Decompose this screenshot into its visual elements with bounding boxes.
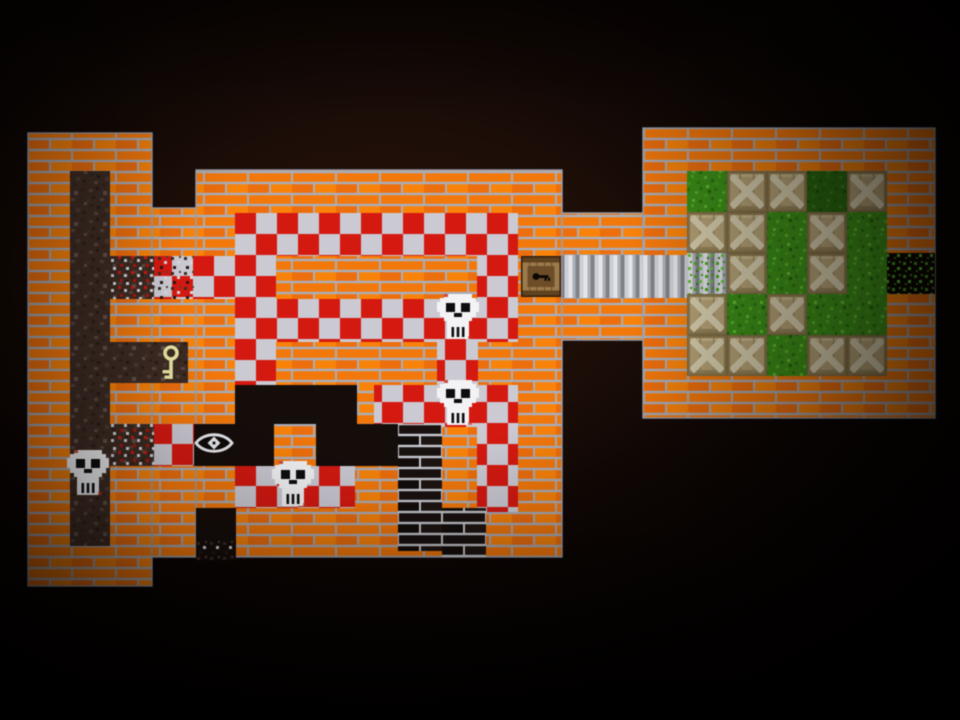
floor-band-top [235, 213, 518, 256]
floor-south-exit-rubble [196, 541, 236, 560]
floor-room-pillar [274, 424, 316, 466]
floor-corridor-floor [562, 255, 687, 298]
crate-icon[interactable] [727, 212, 767, 253]
wall-corridor-bottom-wall [562, 298, 643, 340]
floor-eye-pass-dirt-overlay [110, 424, 154, 466]
crate-icon[interactable] [807, 335, 847, 376]
floor-west-pass-dirt-overlay [110, 256, 154, 299]
floor-west-pass-tile [196, 256, 276, 299]
dungeon-map-canvas[interactable] [0, 0, 960, 720]
crate-icon[interactable] [807, 212, 847, 253]
crate-icon[interactable] [727, 335, 767, 376]
floor-skull-path [437, 342, 478, 385]
crate-icon[interactable] [727, 253, 767, 294]
crate-icon[interactable] [687, 294, 727, 335]
floor-west-pass-mixed-overlay [154, 256, 196, 299]
floor-eye-pass-checker [154, 424, 194, 466]
floor-rubble-foot [442, 508, 486, 557]
crate-icon[interactable] [847, 171, 887, 212]
floor-dark-room-a [235, 385, 357, 427]
crate-icon[interactable] [727, 171, 767, 212]
crate-icon[interactable] [767, 171, 807, 212]
crate-icon[interactable] [847, 335, 887, 376]
floor-right-path [477, 427, 518, 512]
wall-corridor-top-wall [562, 213, 643, 255]
eye-icon[interactable] [196, 435, 232, 452]
crate-icon[interactable] [687, 335, 727, 376]
floor-west-grass-ramp-overlay [687, 253, 727, 294]
crate-icon[interactable] [807, 253, 847, 294]
crate-icon[interactable] [767, 294, 807, 335]
door-icon[interactable] [521, 256, 561, 297]
floor-left-path [235, 342, 276, 385]
floor-grass-dark-patch [807, 171, 847, 212]
crate-icon[interactable] [687, 212, 727, 253]
floor-rubble-column [398, 424, 442, 551]
floor-east-exit-overlay [887, 253, 935, 294]
floor-door-landing [477, 256, 518, 299]
game-scene [0, 0, 960, 720]
